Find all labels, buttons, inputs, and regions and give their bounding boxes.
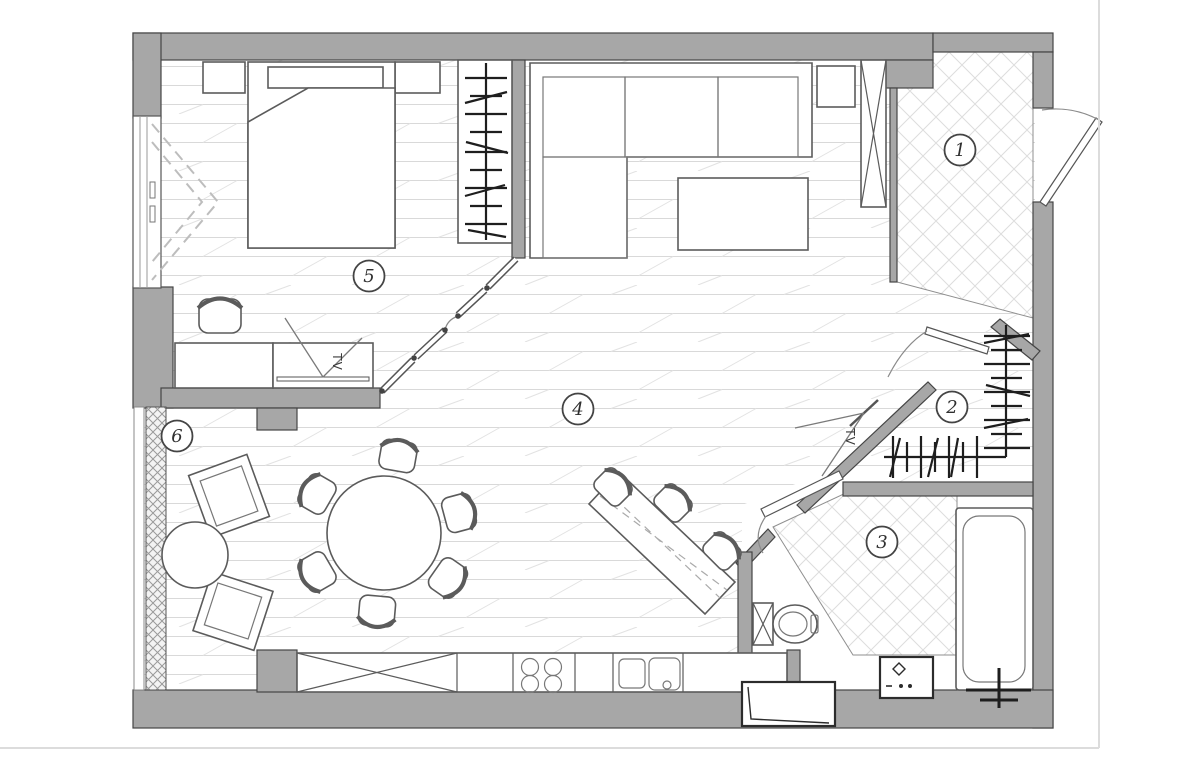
desk-chair bbox=[198, 299, 242, 334]
wall-right-main bbox=[1033, 202, 1053, 728]
tv-label-bedroom: TV bbox=[330, 352, 344, 371]
bed-pillow bbox=[268, 67, 383, 88]
dining-table bbox=[327, 476, 441, 590]
room-number-3: 3 bbox=[876, 532, 887, 553]
room-badge-6: 6 bbox=[162, 421, 193, 452]
room-badge-1: 1 bbox=[945, 135, 976, 166]
tv-screen bbox=[277, 377, 369, 381]
room-badge-2: 2 bbox=[937, 392, 968, 423]
wall-hall-partition bbox=[890, 88, 897, 282]
wall-pier-kitchen-left bbox=[257, 650, 297, 692]
floor-plan: 1 2 3 4 5 6 TV TV bbox=[0, 0, 1200, 761]
wall-bathroom-north bbox=[843, 482, 1033, 496]
washing-machine bbox=[880, 657, 933, 698]
nightstand-right bbox=[395, 62, 440, 93]
entrance-door bbox=[1040, 109, 1102, 206]
dining-chair bbox=[357, 594, 398, 628]
room-number-6: 6 bbox=[171, 426, 182, 447]
wall-top-hall bbox=[933, 33, 1053, 52]
hallway-tile-floor bbox=[897, 52, 1033, 318]
floor-plan-drawing: 1 2 3 4 5 6 TV TV bbox=[0, 0, 1200, 761]
wall-bedroom-south bbox=[161, 388, 380, 408]
room-number-1: 1 bbox=[954, 140, 965, 161]
tv-label-living: TV bbox=[843, 427, 857, 446]
wall-top bbox=[133, 33, 933, 60]
kitchen-counter bbox=[297, 653, 787, 693]
bathtub bbox=[956, 508, 1033, 708]
wall-pier-balcony bbox=[257, 408, 297, 430]
wall-right-upper bbox=[1033, 52, 1053, 108]
side-table bbox=[817, 66, 855, 107]
bedroom-desk bbox=[175, 343, 273, 388]
room-badge-5: 5 bbox=[354, 261, 385, 292]
wall-left-upper bbox=[133, 33, 161, 118]
room-number-4: 4 bbox=[571, 399, 583, 420]
room-number-5: 5 bbox=[363, 266, 374, 287]
round-pouf bbox=[162, 522, 228, 588]
radiator-niche bbox=[742, 682, 835, 726]
room-badge-3: 3 bbox=[867, 527, 898, 558]
room-badge-4: 4 bbox=[563, 394, 594, 425]
room-number-2: 2 bbox=[945, 397, 957, 418]
bed-blanket bbox=[248, 88, 395, 248]
coffee-table bbox=[678, 178, 808, 250]
tall-cabinet bbox=[861, 60, 886, 207]
nightstand-left bbox=[203, 62, 245, 93]
wall-bedroom-living bbox=[512, 60, 525, 258]
toilet bbox=[753, 603, 818, 645]
balcony-glazing bbox=[134, 407, 166, 690]
wall-hall-corner bbox=[885, 60, 933, 88]
